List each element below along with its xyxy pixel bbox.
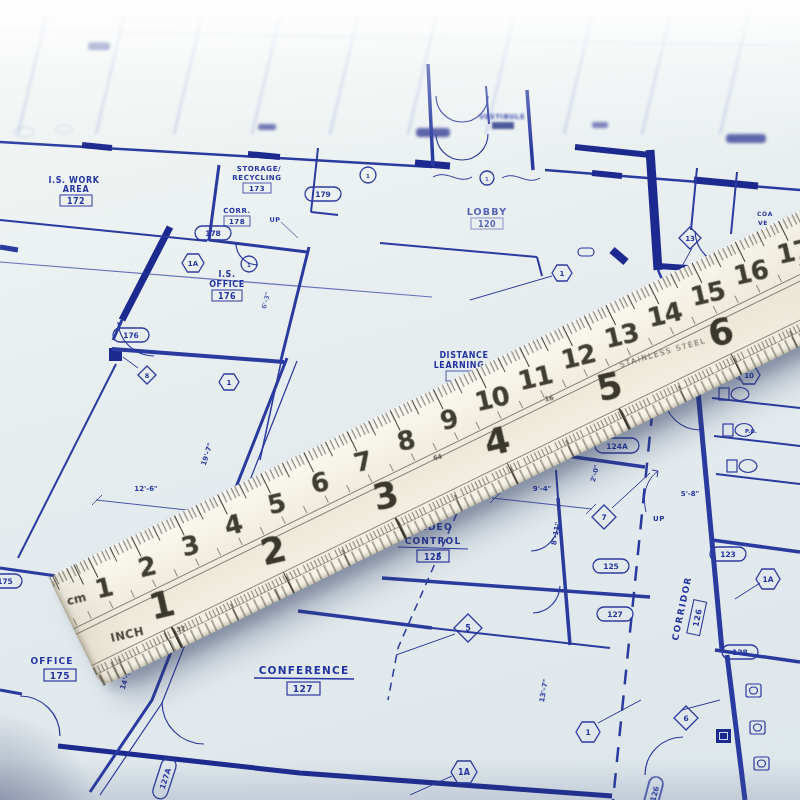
room-label: I.S. WORK <box>49 176 100 185</box>
sink-fixtures <box>746 684 769 770</box>
svg-text:1: 1 <box>247 262 251 268</box>
svg-text:1: 1 <box>560 270 565 278</box>
svg-text:123: 123 <box>720 550 736 559</box>
svg-text:5: 5 <box>465 624 471 633</box>
conference-label: CONFERENCE <box>259 664 350 676</box>
coat-label: COA <box>757 210 773 217</box>
distance-learning-label: DISTANCE <box>439 351 488 360</box>
svg-text:10: 10 <box>744 372 754 380</box>
svg-text:127A: 127A <box>158 767 173 790</box>
svg-text:120: 120 <box>478 220 496 229</box>
svg-text:1A: 1A <box>188 260 199 268</box>
svg-text:1A: 1A <box>458 768 471 777</box>
svg-text:178: 178 <box>205 229 221 238</box>
svg-text:19'-7": 19'-7" <box>200 442 215 467</box>
blueprint-photo: VESTIBULE I.S. WORK AREA 172 STORAGE/ RE… <box>0 0 800 800</box>
up-note: UP <box>269 216 280 224</box>
svg-text:1: 1 <box>485 176 489 182</box>
svg-text:OFFICE: OFFICE <box>209 280 245 289</box>
svg-text:1: 1 <box>227 379 232 387</box>
svg-text:1: 1 <box>366 173 370 179</box>
top-blurred-band <box>0 16 800 143</box>
office-175-label: OFFICE <box>30 656 73 666</box>
svg-text:175: 175 <box>0 577 13 586</box>
svg-text:9'-4": 9'-4" <box>533 485 551 493</box>
svg-text:173: 173 <box>249 185 265 193</box>
up-note-corridor: UP <box>653 515 665 523</box>
svg-text:125: 125 <box>424 553 442 562</box>
svg-text:6'-3": 6'-3" <box>260 291 272 310</box>
svg-text:I.S.: I.S. <box>218 270 235 279</box>
svg-text:5'-8": 5'-8" <box>681 490 699 498</box>
svg-text:179: 179 <box>315 190 331 199</box>
svg-text:STORAGE/: STORAGE/ <box>237 165 281 173</box>
sub-64-label: 64 <box>432 452 443 462</box>
dimension: 12'-6" <box>134 485 157 493</box>
svg-text:6: 6 <box>683 714 688 723</box>
svg-text:13'-7": 13'-7" <box>538 678 550 702</box>
svg-text:124A: 124A <box>606 442 628 451</box>
svg-text:172: 172 <box>67 197 85 206</box>
svg-text:VESTIBULE: VESTIBULE <box>479 113 525 121</box>
cm-unit-label: cm <box>65 590 87 608</box>
svg-text:CONTROL: CONTROL <box>405 536 462 546</box>
svg-text:127: 127 <box>607 610 623 619</box>
svg-text:13: 13 <box>685 235 695 243</box>
svg-text:7: 7 <box>601 513 606 522</box>
svg-text:175: 175 <box>50 671 70 681</box>
svg-text:RECYCLING: RECYCLING <box>232 174 281 182</box>
svg-text:VE: VE <box>758 219 768 226</box>
lobby-label: LOBBY <box>467 206 508 217</box>
svg-text:2'-0": 2'-0" <box>589 464 601 483</box>
svg-text:1A: 1A <box>762 575 773 584</box>
svg-text:8: 8 <box>145 372 150 380</box>
svg-text:125: 125 <box>603 562 619 571</box>
svg-text:128: 128 <box>732 648 748 657</box>
svg-text:176: 176 <box>123 331 139 340</box>
svg-text:1: 1 <box>585 728 590 737</box>
corridor-label: CORRIDOR <box>670 575 693 641</box>
svg-text:CORR.: CORR. <box>223 207 251 215</box>
po-note: P.O. <box>745 428 757 434</box>
svg-text:AREA: AREA <box>63 185 90 194</box>
svg-text:127: 127 <box>293 684 313 694</box>
svg-text:178: 178 <box>229 218 245 226</box>
vestibule-label: VESTIBULE <box>479 113 525 129</box>
svg-text:176: 176 <box>218 292 236 301</box>
